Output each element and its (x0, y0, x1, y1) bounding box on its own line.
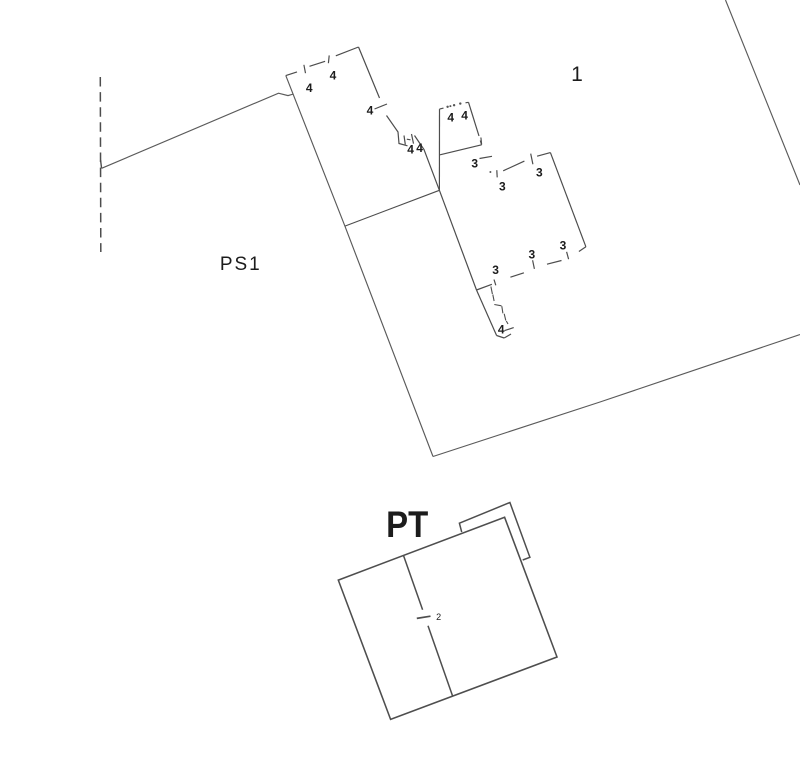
svg-text:4: 4 (447, 110, 454, 124)
svg-text:4: 4 (461, 109, 468, 123)
svg-text:3: 3 (536, 166, 543, 180)
svg-text:4: 4 (416, 141, 423, 155)
svg-text:4: 4 (306, 81, 313, 95)
svg-text:4: 4 (407, 143, 414, 157)
svg-text:3: 3 (492, 263, 499, 277)
svg-text:3: 3 (471, 157, 478, 171)
svg-text:3: 3 (560, 239, 567, 253)
svg-text:3: 3 (528, 248, 535, 262)
svg-text:4: 4 (330, 69, 337, 83)
svg-text:PS1: PS1 (220, 254, 262, 275)
svg-text:PT: PT (386, 504, 429, 545)
svg-text:3: 3 (499, 180, 506, 194)
svg-text:2: 2 (436, 612, 441, 622)
svg-text:1: 1 (571, 63, 583, 86)
svg-text:4: 4 (367, 104, 374, 118)
svg-text:4: 4 (498, 323, 505, 337)
